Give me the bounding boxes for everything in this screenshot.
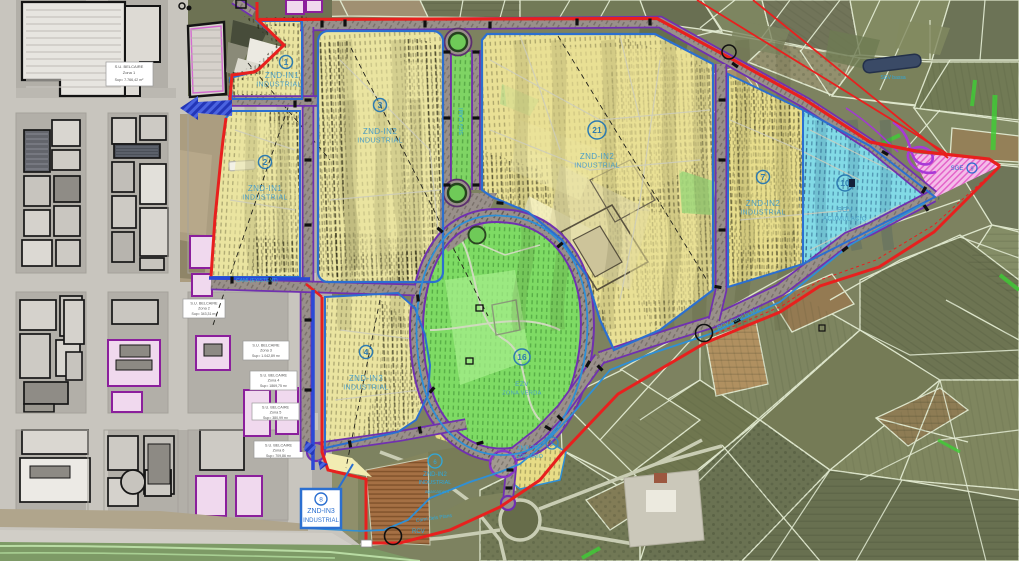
svg-text:10: 10 — [840, 178, 850, 188]
svg-text:Sup= 709,86 m²: Sup= 709,86 m² — [266, 454, 292, 458]
svg-text:Sup= 1869,75 m²: Sup= 1869,75 m² — [260, 384, 288, 388]
svg-text:ACUMULACIÓ: ACUMULACIÓ — [823, 216, 867, 223]
svg-text:TERCIARIO: TERCIARIO — [513, 454, 544, 460]
svg-text:Zona 6: Zona 6 — [273, 449, 285, 453]
svg-text:ZND-IN2: ZND-IN2 — [746, 199, 781, 208]
svg-text:ZND-IN1: ZND-IN1 — [265, 71, 300, 80]
svg-text:S.U. BELCAIRE: S.U. BELCAIRE — [115, 64, 144, 69]
svg-text:Zona 5: Zona 5 — [270, 411, 282, 415]
svg-text:Sup= 343,31 m²: Sup= 343,31 m² — [191, 312, 217, 316]
svg-text:8: 8 — [319, 497, 323, 504]
svg-text:Zona 3: Zona 3 — [260, 349, 272, 353]
svg-text:ZND-IN2: ZND-IN2 — [363, 127, 398, 136]
svg-text:Sup= 7.766,42 m²: Sup= 7.766,42 m² — [115, 78, 144, 82]
svg-text:SGV bassa: SGV bassa — [880, 75, 906, 81]
svg-text:INDUSTRIAL: INDUSTRIAL — [740, 210, 786, 217]
svg-text:aparcament: aparcament — [425, 489, 450, 494]
svg-text:1: 1 — [284, 57, 289, 67]
svg-text:Zona 1: Zona 1 — [123, 70, 136, 75]
svg-text:ZONA VERDA: ZONA VERDA — [502, 391, 541, 397]
svg-text:S.U. BELCAIRE: S.U. BELCAIRE — [262, 406, 290, 410]
svg-text:ZND-IN2: ZND-IN2 — [423, 472, 447, 478]
svg-text:7: 7 — [761, 172, 766, 182]
svg-text:ZND-TR: ZND-TR — [517, 446, 540, 452]
svg-text:16: 16 — [517, 352, 527, 362]
svg-text:Zona 4: Zona 4 — [268, 379, 280, 383]
svg-text:Sup= 380,99 m²: Sup= 380,99 m² — [263, 416, 289, 420]
svg-text:Sup= 1.042,89 m²: Sup= 1.042,89 m² — [252, 354, 281, 358]
svg-text:ZND-IN1: ZND-IN1 — [248, 184, 283, 193]
svg-text:INDUSTRIAL: INDUSTRIAL — [256, 82, 302, 89]
svg-text:SGV: SGV — [837, 207, 853, 214]
svg-text:SGV CAMÍ: SGV CAMÍ — [458, 108, 465, 135]
svg-text:INDUSTRIAL: INDUSTRIAL — [357, 138, 403, 145]
svg-text:3: 3 — [378, 100, 383, 110]
svg-text:Zona 2: Zona 2 — [198, 307, 210, 311]
svg-text:EZV: EZV — [515, 381, 529, 388]
svg-text:S.U. BELCAIRE: S.U. BELCAIRE — [190, 302, 218, 306]
svg-text:INDUSTRIAL: INDUSTRIAL — [419, 480, 452, 486]
svg-text:S.U. BELCAIRE: S.U. BELCAIRE — [260, 374, 288, 378]
svg-text:S.U. BELCAIRE: S.U. BELCAIRE — [252, 344, 280, 348]
svg-text:4: 4 — [364, 347, 369, 357]
svg-text:RCV: RCV — [412, 529, 425, 535]
svg-text:ZND-IN2: ZND-IN2 — [580, 152, 615, 161]
svg-text:2: 2 — [263, 157, 268, 167]
svg-text:INDUSTRIAL: INDUSTRIAL — [343, 385, 389, 392]
svg-text:INDUSTRIAL: INDUSTRIAL — [242, 195, 288, 202]
svg-text:INDUSTRIAL: INDUSTRIAL — [303, 518, 339, 524]
svg-text:ZND-IN3: ZND-IN3 — [349, 374, 384, 383]
svg-text:CAMÍ (EXISTENT): CAMÍ (EXISTENT) — [236, 277, 278, 284]
svg-text:SGE: SGE — [951, 166, 964, 172]
svg-text:INDUSTRIAL: INDUSTRIAL — [574, 163, 620, 170]
svg-text:S.U. BELCAIRE: S.U. BELCAIRE — [265, 444, 293, 448]
svg-text:21: 21 — [592, 125, 602, 135]
svg-text:9: 9 — [970, 167, 973, 173]
svg-text:ZND-IN3: ZND-IN3 — [307, 508, 335, 515]
